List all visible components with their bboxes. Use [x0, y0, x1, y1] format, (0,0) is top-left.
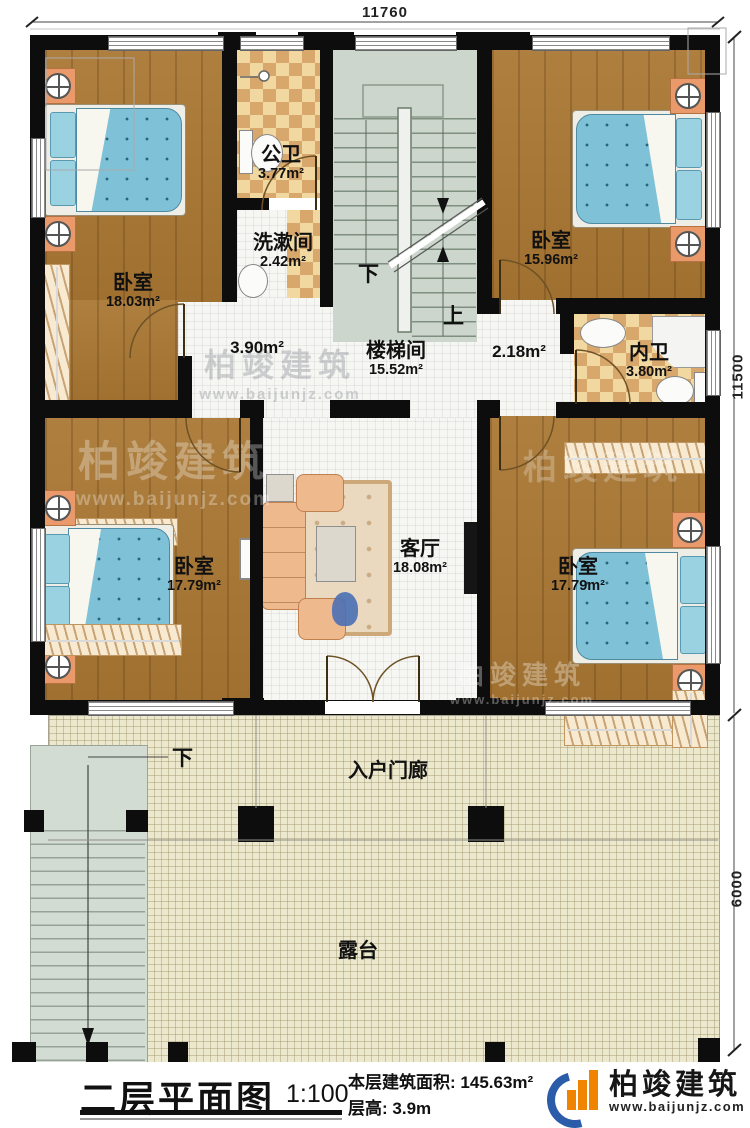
wall	[477, 35, 492, 307]
window	[706, 546, 721, 664]
nightstand	[672, 512, 708, 548]
wall	[330, 400, 410, 418]
wall	[222, 35, 237, 302]
column	[12, 1042, 36, 1064]
pillow	[676, 170, 702, 220]
lamp-icon	[675, 83, 701, 109]
room-name: 洗漱间	[253, 232, 313, 254]
dimension-right-lower: 6000	[729, 862, 746, 916]
title-block: 二层平面图 1:100 本层建筑面积: 145.63m² 层高: 3.9m 柏竣…	[0, 1062, 750, 1128]
lamp-icon	[45, 73, 71, 99]
room-label-porch: 入户门廊	[348, 760, 428, 782]
stair-treads-left	[334, 118, 398, 266]
room-label-terrace: 露台	[338, 940, 378, 962]
wardrobe	[42, 264, 70, 406]
pillow	[44, 534, 70, 584]
room-name: 客厅	[393, 538, 447, 560]
column	[698, 1038, 720, 1062]
logo-building-bar	[567, 1090, 576, 1110]
pillow	[680, 606, 706, 654]
column	[126, 810, 148, 832]
nightstand	[40, 490, 76, 526]
floor-height-label: 层高:	[348, 1099, 388, 1118]
nightstand	[670, 78, 706, 114]
window	[31, 138, 46, 218]
wall	[250, 414, 263, 702]
room-area: 15.96m²	[524, 252, 578, 268]
room-name: 入户门廊	[348, 760, 428, 782]
room-name: 露台	[338, 940, 378, 962]
wall	[320, 35, 333, 307]
wall-pier	[456, 698, 500, 715]
lamp-icon	[675, 231, 701, 257]
window	[355, 36, 457, 51]
stairs-up-label: 上	[443, 300, 464, 330]
pillow	[50, 112, 76, 158]
title-underline-thin	[80, 1118, 342, 1120]
scale-text: 1:100	[286, 1080, 349, 1109]
room-area: 17.79m²	[551, 578, 605, 594]
dim-tick	[728, 1044, 741, 1056]
stairs-down-label: 下	[358, 258, 379, 288]
wall	[477, 414, 490, 702]
wall-pier	[456, 32, 530, 50]
room-label-public-bath: 公卫 3.77m²	[258, 144, 304, 183]
room-name: 卧室	[524, 230, 578, 252]
window	[108, 36, 224, 51]
room-area: 18.08m²	[393, 560, 447, 576]
floor-area-value: 145.63m²	[460, 1073, 533, 1092]
nightstand	[40, 68, 76, 104]
room-area: 2.18m²	[492, 342, 546, 361]
bed-sheet	[577, 115, 675, 223]
room-area: 15.52m²	[366, 362, 426, 378]
column	[24, 810, 44, 832]
title-underline	[80, 1110, 342, 1115]
bed-mattress	[576, 114, 676, 224]
side-table	[266, 474, 294, 502]
room-area: 17.79m²	[167, 578, 221, 594]
column	[238, 806, 274, 842]
window	[706, 112, 721, 228]
window	[532, 36, 670, 51]
floor-plan-canvas: 柏竣建筑 www.baijunjz.com 柏竣建筑 www.baijunjz.…	[0, 0, 750, 1128]
floor-height-value: 3.9m	[392, 1099, 431, 1118]
room-area: 3.90m²	[230, 338, 284, 357]
room-name: 内卫	[626, 342, 672, 364]
room-label-hall-left: 3.90m²	[230, 338, 284, 357]
terrace-stairs-down-label: 下	[172, 742, 193, 772]
entry-door-opening	[325, 701, 420, 714]
room-label-hall-right: 2.18m²	[492, 342, 546, 361]
brand-text: 柏竣建筑 www.baijunjz.com	[609, 1070, 745, 1114]
room-label-washroom: 洗漱间 2.42m²	[253, 232, 313, 271]
wall	[477, 298, 501, 314]
bed-sheet	[69, 529, 169, 639]
column	[485, 1042, 505, 1064]
wall	[556, 298, 720, 314]
room-area: 3.77m²	[258, 166, 304, 182]
dimension-top: 11760	[345, 4, 425, 21]
lamp-icon	[45, 221, 71, 247]
logo-building-bar	[578, 1080, 587, 1110]
pillow	[676, 118, 702, 168]
decor-figure	[332, 592, 358, 626]
column	[468, 806, 504, 842]
window	[706, 330, 721, 396]
lamp-icon	[45, 495, 71, 521]
dim-tick	[728, 31, 741, 43]
dim-tick	[712, 17, 724, 27]
armchair	[296, 474, 344, 512]
logo-building-bar	[589, 1070, 598, 1110]
wall-pier	[298, 32, 354, 50]
wall	[560, 300, 574, 354]
window	[88, 701, 234, 716]
room-name: 楼梯间	[366, 340, 426, 362]
brand-url: www.baijunjz.com	[609, 1100, 745, 1114]
tv	[464, 522, 478, 594]
lamp-icon	[677, 517, 703, 543]
room-label-bedroom-tr: 卧室 15.96m²	[524, 230, 578, 269]
wall	[178, 356, 192, 418]
room-label-bedroom-tl: 卧室 18.03m²	[106, 272, 160, 311]
room-name: 卧室	[551, 556, 605, 578]
room-name: 卧室	[106, 272, 160, 294]
dim-tick	[728, 709, 741, 721]
brand-logo: 柏竣建筑 www.baijunjz.com	[545, 1064, 745, 1120]
bathroom-sink	[580, 318, 626, 348]
wardrobe	[672, 690, 708, 748]
nightstand	[670, 226, 706, 262]
floor-area-label: 本层建筑面积:	[348, 1073, 456, 1092]
nightstand	[40, 216, 76, 252]
room-label-inner-bath: 内卫 3.80m²	[626, 342, 672, 381]
room-name: 公卫	[258, 144, 304, 166]
wardrobe	[564, 442, 708, 474]
floor-height-line: 层高: 3.9m	[348, 1094, 431, 1119]
lamp-icon	[45, 653, 71, 679]
brand-logo-icon	[545, 1064, 601, 1120]
pillow	[680, 556, 706, 604]
room-area: 18.03m²	[106, 294, 160, 310]
sofa	[262, 502, 306, 610]
dim-tick	[26, 17, 38, 27]
floor-area-line: 本层建筑面积: 145.63m²	[348, 1068, 533, 1093]
brand-name: 柏竣建筑	[609, 1070, 745, 1100]
wall	[556, 402, 720, 418]
room-area: 3.80m²	[626, 364, 672, 380]
coffee-table	[316, 526, 356, 582]
window	[31, 528, 46, 642]
window	[240, 36, 304, 51]
wall	[237, 198, 269, 210]
pillow	[50, 160, 76, 206]
room-label-stairwell: 楼梯间 15.52m²	[366, 340, 426, 379]
window	[545, 701, 691, 716]
bed-mattress	[76, 108, 182, 212]
room-name: 卧室	[167, 556, 221, 578]
wall	[30, 400, 180, 418]
room-label-bedroom-bl: 卧室 17.79m²	[167, 556, 221, 595]
room-label-bedroom-br: 卧室 17.79m²	[551, 556, 605, 595]
dimension-right-upper: 11500	[730, 347, 747, 407]
bed-sheet	[77, 109, 181, 211]
room-label-living: 客厅 18.08m²	[393, 538, 447, 577]
wardrobe	[44, 624, 182, 656]
room-area: 2.42m²	[253, 254, 313, 270]
